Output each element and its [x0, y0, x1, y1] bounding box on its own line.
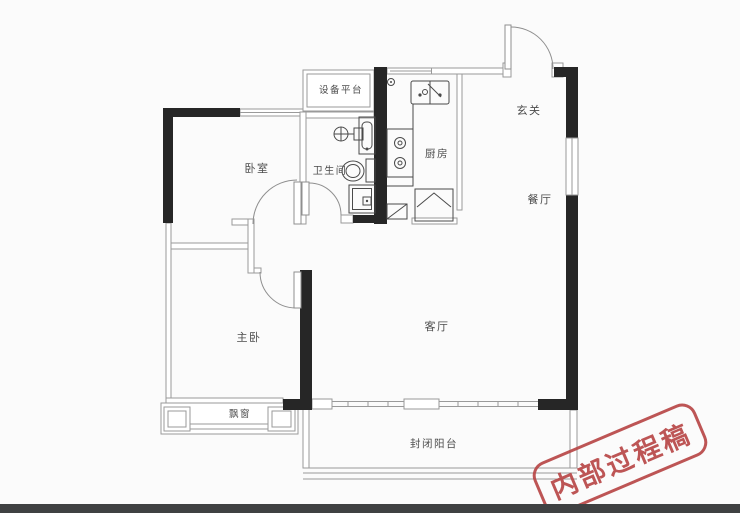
bathroom-door — [302, 182, 341, 215]
room-label-living: 客厅 — [425, 319, 450, 333]
bathroom-sink-icon — [359, 117, 375, 154]
wall — [166, 223, 171, 404]
room-label-entrance: 玄关 — [517, 103, 542, 117]
room-label-kitchen: 厨房 — [425, 147, 449, 160]
floor-plan-canvas: 设备平台 卧室 卫生间 厨房 玄关 餐厅 客厅 主卧 飘窗 封闭阳台 内部过程稿 — [0, 0, 740, 513]
wall — [248, 219, 254, 273]
bedroom-door — [253, 180, 301, 224]
master-bedroom-door — [260, 272, 301, 308]
gas-stove-icon — [387, 129, 413, 177]
shower-icon — [349, 185, 375, 213]
room-label-bathroom: 卫生间 — [313, 164, 348, 177]
room-label-bay-window: 飘窗 — [229, 408, 251, 420]
room-label-dining: 餐厅 — [528, 192, 553, 206]
kitchen-sink-icon — [411, 81, 449, 104]
room-labels: 设备平台 卧室 卫生间 厨房 玄关 餐厅 客厅 主卧 飘窗 封闭阳台 — [229, 84, 553, 450]
bottom-edge-bar — [0, 504, 740, 513]
wall — [166, 243, 248, 249]
window — [566, 138, 578, 195]
room-label-bedroom: 卧室 — [245, 161, 270, 175]
kitchen-corner-cabinet — [387, 204, 407, 219]
room-label-master-bedroom: 主卧 — [237, 331, 262, 344]
wall — [457, 74, 462, 210]
door-jamb — [341, 215, 353, 223]
gas-meter-icon — [388, 79, 395, 86]
refrigerator-icon — [415, 189, 453, 221]
room-label-equipment-platform: 设备平台 — [319, 84, 363, 96]
entry-door — [505, 25, 553, 69]
room-label-balcony: 封闭阳台 — [410, 437, 458, 450]
balcony-window-band — [312, 399, 538, 409]
thin-walls — [161, 63, 577, 479]
